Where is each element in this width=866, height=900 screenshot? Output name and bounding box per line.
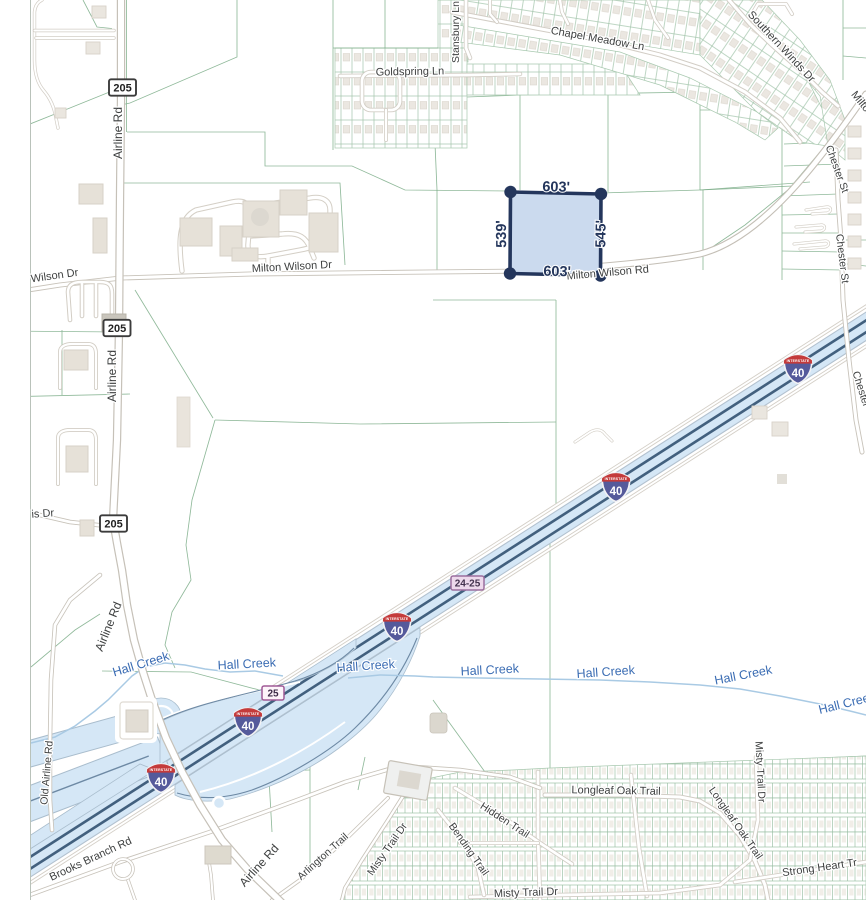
svg-text:INTERSTATE: INTERSTATE	[150, 768, 173, 772]
svg-text:40: 40	[242, 721, 255, 733]
svg-text:Goldspring Ln: Goldspring Ln	[376, 65, 445, 78]
svg-text:is Dr: is Dr	[31, 507, 55, 521]
svg-text:INTERSTATE: INTERSTATE	[605, 477, 628, 481]
svg-text:545': 545'	[593, 220, 609, 248]
svg-text:INTERSTATE: INTERSTATE	[237, 712, 260, 716]
svg-text:INTERSTATE: INTERSTATE	[386, 617, 409, 621]
svg-text:INTERSTATE: INTERSTATE	[787, 359, 810, 363]
svg-text:25: 25	[267, 689, 279, 700]
svg-text:603': 603'	[542, 179, 570, 196]
svg-text:40: 40	[610, 486, 623, 498]
svg-text:Misty Trail Dr: Misty Trail Dr	[494, 886, 559, 900]
svg-text:40: 40	[155, 777, 168, 789]
svg-text:Airline Rd: Airline Rd	[111, 107, 125, 159]
svg-text:539': 539'	[494, 220, 510, 248]
svg-text:205: 205	[108, 323, 126, 335]
svg-text:603': 603'	[543, 264, 571, 281]
svg-text:24-25: 24-25	[455, 579, 481, 590]
svg-text:40: 40	[792, 368, 805, 380]
svg-text:205: 205	[113, 83, 131, 95]
svg-text:40: 40	[391, 626, 404, 638]
svg-text:Longleaf Oak Trail: Longleaf Oak Trail	[571, 784, 660, 798]
svg-text:Stansbury Ln: Stansbury Ln	[450, 1, 462, 63]
svg-text:205: 205	[104, 519, 122, 531]
svg-text:Airline Rd: Airline Rd	[105, 350, 119, 402]
